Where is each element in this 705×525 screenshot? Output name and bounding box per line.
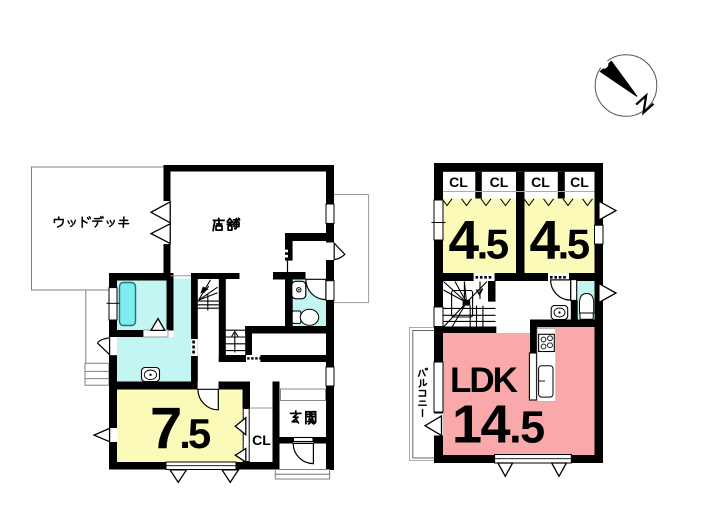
- svg-text:CL: CL: [490, 174, 509, 190]
- svg-text:CL: CL: [252, 432, 271, 448]
- svg-text:CL: CL: [531, 174, 550, 190]
- svg-text:14.5: 14.5: [452, 395, 544, 455]
- svg-text:CL: CL: [449, 174, 468, 190]
- svg-text:CL: CL: [570, 174, 589, 190]
